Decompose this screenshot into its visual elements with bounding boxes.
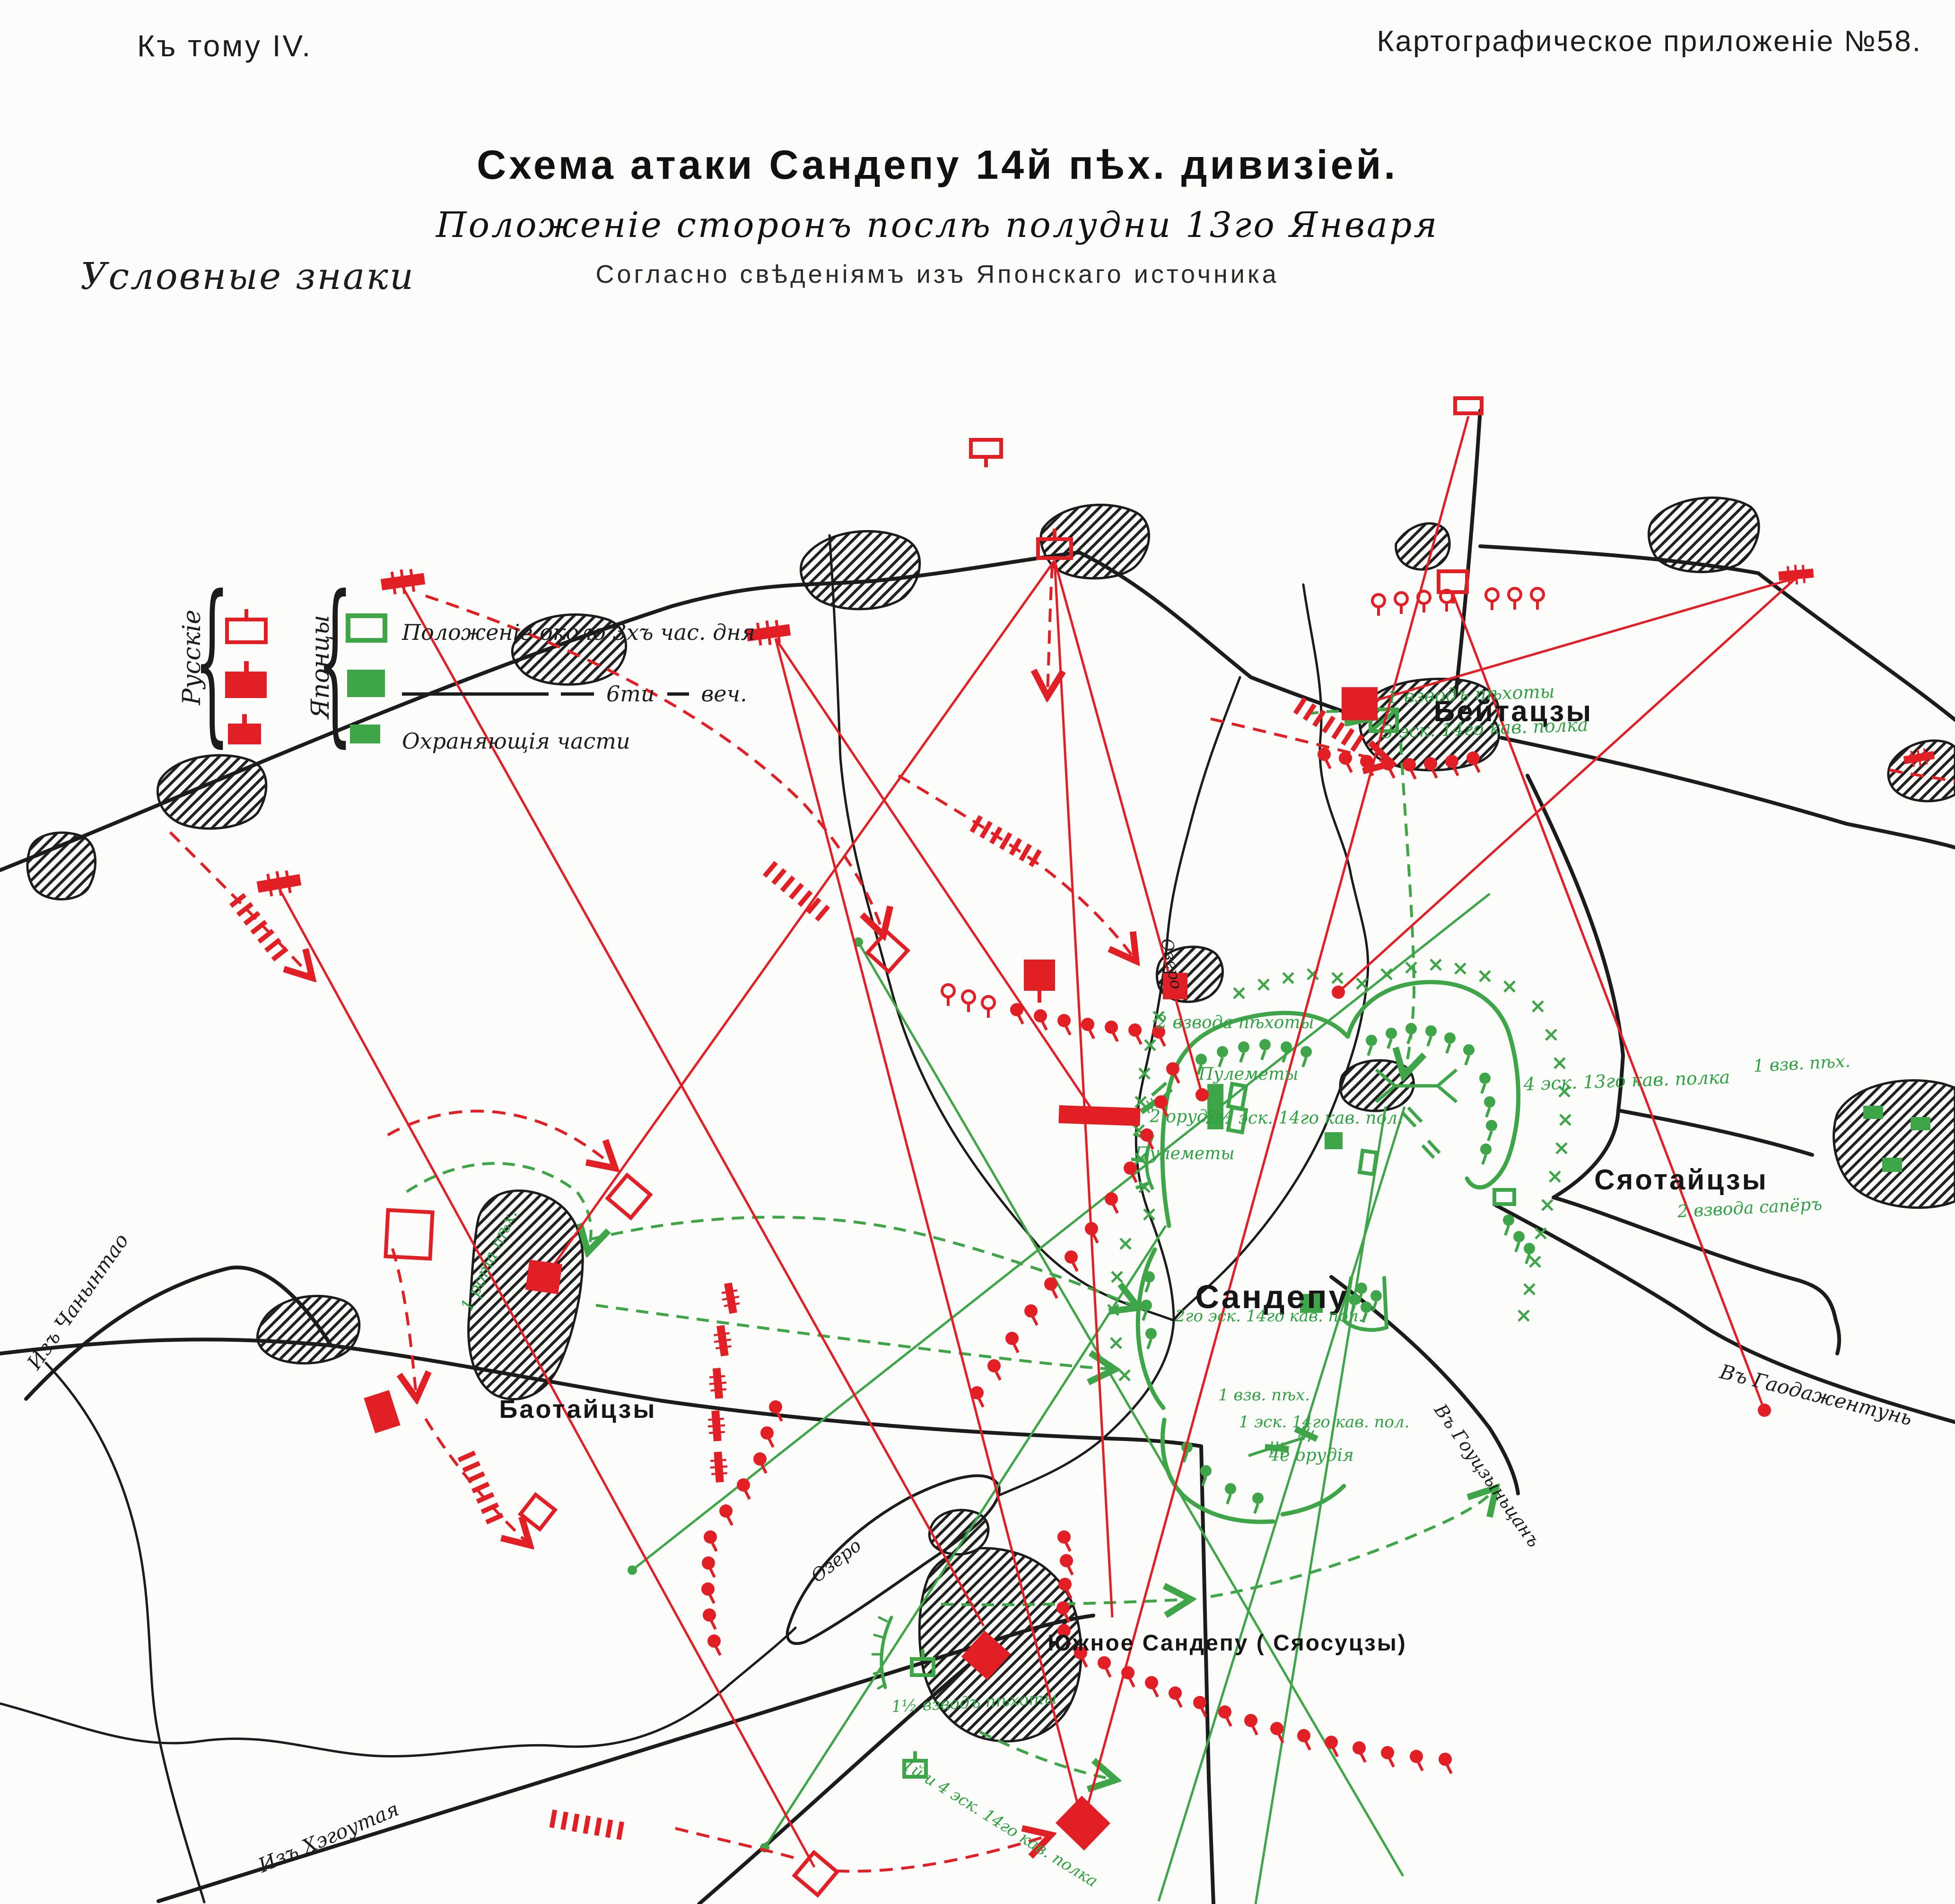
map-sheet: Къ тому IV. Картографическое приложеніе … bbox=[0, 0, 1955, 1904]
legend-row2-dash2 bbox=[667, 692, 689, 696]
legend-row1-label: Положеніе около 3хъ час. дня bbox=[402, 620, 755, 645]
map-subtitle: Положеніе сторонъ послѣ полудни 13го Янв… bbox=[436, 205, 1439, 245]
appendix-number: Картографическое приложеніе №58. bbox=[1377, 25, 1922, 58]
japanese-layer bbox=[407, 709, 1930, 1904]
legend: Условные знаки Русскіе { Японцы { Положе… bbox=[71, 255, 662, 520]
volume-reference: Къ тому IV. bbox=[137, 28, 312, 63]
legend-row2-line bbox=[402, 692, 549, 696]
legend-row3-label: Охраняющія части bbox=[402, 728, 630, 754]
legend-row2-suffix: веч. bbox=[701, 681, 747, 707]
map-title: Схема атаки Сандепу 14й пѣх. дивизіей. bbox=[436, 142, 1439, 189]
legend-row2-dash bbox=[561, 692, 594, 696]
legend-row2: 6ти веч. bbox=[402, 681, 747, 707]
russian-marching-columns bbox=[229, 697, 1364, 1840]
legend-heading: Условные знаки bbox=[80, 255, 415, 298]
legend-row2-time: 6ти bbox=[606, 681, 655, 707]
russian-regiment-bar bbox=[1058, 1105, 1140, 1126]
